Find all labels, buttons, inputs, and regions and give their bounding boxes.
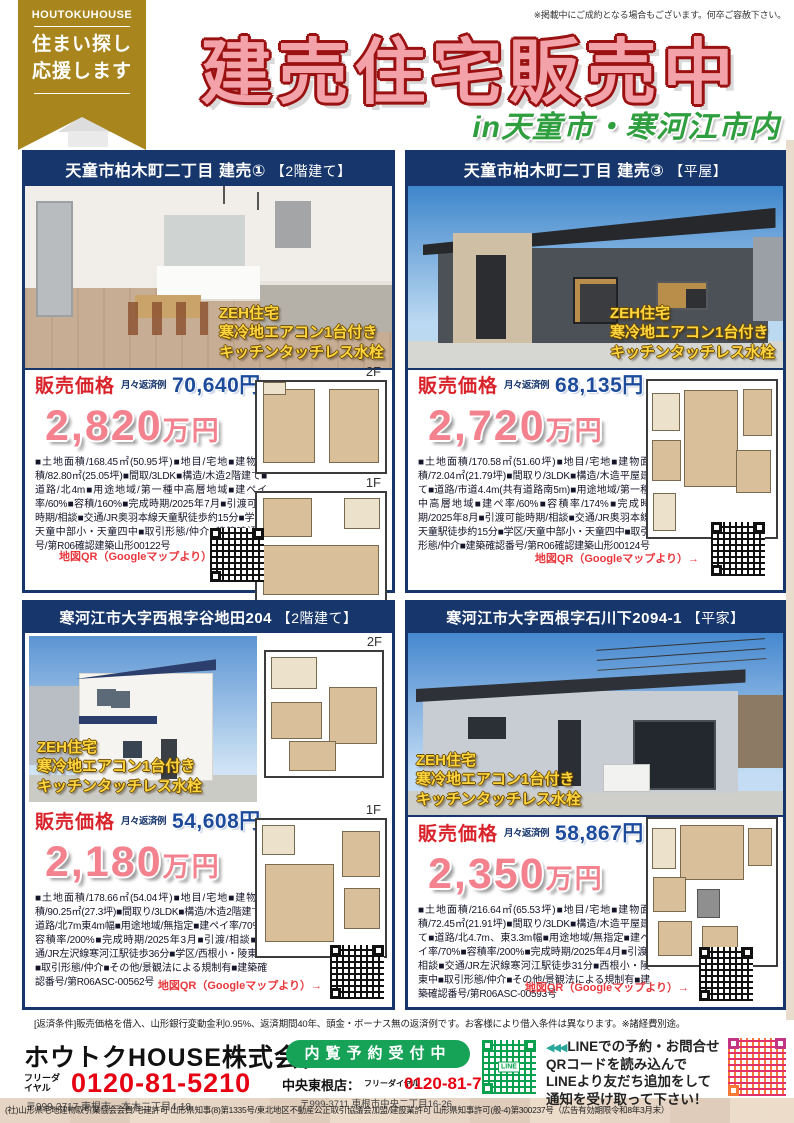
floor-label-2f: 2F [255,363,387,380]
zeh-line2: 寒冷地エアコン1台付き [610,323,775,343]
zeh-badge: ZEH住宅 寒冷地エアコン1台付き キッチンタッチレス水栓 [610,304,775,363]
price-unit: 万円 [163,416,221,446]
map-qr-label: 地図QR（Googleマップより）→ [59,548,223,564]
line-qr-label: LINE [498,1062,520,1073]
photo-neighbor-house [738,695,783,768]
brand-name: HOUTOKUHOUSE [18,9,146,21]
background-wood-edge [786,140,794,1020]
property-grid: 天童市柏木町二丁目 建売① 【2階建て】 ZEH住宅 寒冷地エアコン1台付き キ… [22,150,786,1012]
zeh-line3: キッチンタッチレス水栓 [416,790,581,810]
price-row: 販売価格 月々返済例 68,135円 [418,369,650,399]
ribbon-slogan-line2: 応援します [18,59,146,86]
photo-mid-roofline [79,716,157,724]
property-3-photo-row: ZEH住宅 寒冷地エアコン1台付き キッチンタッチレス水栓 2F [25,633,392,805]
photo-small-window [468,717,506,739]
ribbon-slogan: 住まい探し 応援します [18,32,146,85]
line-qr-code: LINE [482,1040,536,1094]
price-row: 販売価格 月々返済例 70,640円 [35,369,267,399]
zeh-line1: ZEH住宅 [37,738,202,758]
floorplan-2f [264,650,384,778]
ribbon-divider [34,26,130,27]
zeh-badge: ZEH住宅 寒冷地エアコン1台付き キッチンタッチレス水栓 [37,738,202,797]
property-3-details: ■土地面積/178.66㎡(54.04坪)■地目/宅地■建物面積/90.25㎡(… [35,892,267,990]
map-qr-code [699,947,753,1001]
floorplan-2f [255,380,387,474]
monthly-payment-value: 70,640円 [172,369,261,399]
property-2-title: 天童市柏木町二丁目 建売③ [464,163,665,180]
ribbon-slogan-line1: 住まい探し [18,32,146,59]
property-1-photo: ZEH住宅 寒冷地エアコン1台付き キッチンタッチレス水栓 [25,186,392,370]
zeh-line2: 寒冷地エアコン1台付き [416,770,581,790]
price-value: 2,350万円 [428,850,650,899]
map-qr-label: 地図QR（Googleマップより）→ [535,550,699,566]
monthly-payment-label: 月々返済例 [121,377,166,391]
price-number: 2,720 [428,402,546,450]
price-number: 2,180 [45,838,163,886]
price-label: 販売価格 [35,807,115,834]
main-phone-number: 0120-81-5210 [71,1068,251,1099]
zeh-line1: ZEH住宅 [610,304,775,324]
reservation-banner: 内覧予約受付中 [286,1040,470,1068]
photo-pendant-lights [223,186,225,204]
property-3-floorplan-2f-area: 2F [256,633,388,805]
price-value: 2,720万円 [428,402,650,451]
floorplan-1f [255,491,387,603]
property-card-1: 天童市柏木町二丁目 建売① 【2階建て】 ZEH住宅 寒冷地エアコン1台付き キ… [22,150,395,593]
photo-entry-door [476,255,506,339]
floor-label-2f: 2F [256,633,388,650]
zeh-line1: ZEH住宅 [219,304,384,324]
price-number: 2,820 [45,402,163,450]
photo-windows [97,689,115,706]
branch-store-label: 中央東根店： [282,1075,360,1094]
photo-power-lines [596,638,764,651]
photo-range-hood [275,201,312,248]
property-2-info: 販売価格 月々返済例 68,135円 2,720万円 ■土地面積/170.58㎡… [418,369,650,554]
property-card-2: 天童市柏木町二丁目 建売③ 【平屋】 ZEH住宅 寒冷地エアコン1台付き キッチ… [405,150,786,593]
zeh-line3: キッチンタッチレス水栓 [37,777,202,797]
map-qr-code [711,522,765,576]
property-4-floorplans [646,817,778,967]
price-label: 販売価格 [418,819,498,846]
map-qr-code [330,945,384,999]
zeh-line3: キッチンタッチレス水栓 [219,343,384,363]
property-3-photo: ZEH住宅 寒冷地エアコン1台付き キッチンタッチレス水栓 [29,636,257,802]
freedial-label: フリーダイヤル [24,1074,66,1094]
property-1-title: 天童市柏木町二丁目 建売① [65,163,266,180]
property-1-info: 販売価格 月々返済例 70,640円 2,820万円 ■土地面積/168.45㎡… [35,369,267,554]
property-2-details: ■土地面積/170.58㎡(51.60坪)■地目/宅地■建物面積/72.04㎡(… [418,456,650,554]
instagram-qr-code [728,1038,786,1096]
zeh-badge: ZEH住宅 寒冷地エアコン1台付き キッチンタッチレス水栓 [219,304,384,363]
line-instructions-line2: QRコードを読み込んで [546,1056,720,1074]
flyer-page: ※掲載中にご成約となる場合もございます。何卒ご容赦下さい。 HOUTOKUHOU… [0,0,794,1123]
photo-door [36,201,73,318]
zeh-badge: ZEH住宅 寒冷地エアコン1台付き キッチンタッチレス水栓 [416,751,581,810]
property-1-title-bar: 天童市柏木町二丁目 建売① 【2階建て】 [25,153,392,186]
floor-label-1f: 1F [255,474,387,491]
property-4-info: 販売価格 月々返済例 58,867円 2,350万円 ■土地面積/216.64㎡… [418,817,650,1002]
line-instructions: ◀◀◀LINEでの予約・お問合せ QRコードを読み込んで LINEより友だち追加… [546,1038,720,1108]
price-unit: 万円 [163,852,221,882]
price-label: 販売価格 [418,371,498,398]
property-4-type-tag: 【平家】 [687,610,745,626]
map-qr-code [210,528,264,582]
zeh-line3: キッチンタッチレス水栓 [610,343,775,363]
property-3-title-bar: 寒河江市大字西根字谷地田204 【2階建て】 [25,603,392,633]
floorplan-1f [255,818,387,958]
freedial-label: フリーダイヤル [364,1080,400,1089]
property-3-floorplan-1f-area: 1F [255,801,387,958]
floorplan-1f [646,817,778,967]
license-fine-print: (社)山形県宅地建物取引業協会会員/宅建許可 山形県知事(8)第1335号/東北… [5,1104,669,1116]
price-value: 2,180万円 [45,838,267,887]
main-phone-row: フリーダイヤル 0120-81-5210 [24,1068,251,1099]
monthly-payment-label: 月々返済例 [504,377,549,391]
monthly-payment-value: 68,135円 [555,369,644,399]
branch-phone-row: 中央東根店： フリーダイヤル 0120-81-7778 [282,1074,510,1094]
price-value: 2,820万円 [45,402,267,451]
map-qr-label: 地図QR（Googleマップより）→ [525,979,689,995]
property-card-4: 寒河江市大字西根字石川下2094-1 【平家】 ZEH住宅 寒冷地エアコン1台付… [405,600,786,1010]
property-2-type-tag: 【平屋】 [669,163,727,179]
property-card-3: 寒河江市大字西根字谷地田204 【2階建て】 ZEH住宅 寒冷地エアコン1台付き… [22,600,395,1010]
property-4-photo: ZEH住宅 寒冷地エアコン1台付き キッチンタッチレス水栓 [408,633,783,817]
left-arrows-icon: ◀◀◀ [546,1042,565,1054]
price-row: 販売価格 月々返済例 58,867円 [418,817,650,847]
monthly-payment-value: 58,867円 [555,817,644,847]
property-2-title-bar: 天童市柏木町二丁目 建売③ 【平屋】 [408,153,783,186]
map-qr-label: 地図QR（Googleマップより）→ [158,977,322,993]
monthly-payment-label: 月々返済例 [121,813,166,827]
property-4-title-bar: 寒河江市大字西根字石川下2094-1 【平家】 [408,603,783,633]
price-unit: 万円 [546,416,604,446]
property-1-floorplans: 2F 1F [255,363,387,603]
property-3-title: 寒河江市大字西根字谷地田204 [60,610,273,627]
property-1-type-tag: 【2階建て】 [271,163,352,179]
property-2-photo: ZEH住宅 寒冷地エアコン1台付き キッチンタッチレス水栓 [408,186,783,370]
line-instructions-line3: LINEより友だち追加をして [546,1073,720,1091]
page-subtitle: in天童市・寒河江市内 [472,102,780,146]
property-2-floorplans [646,379,778,539]
ribbon-divider [34,93,130,94]
zeh-line2: 寒冷地エアコン1台付き [37,757,202,777]
floorplan-1f [646,379,778,539]
photo-chairs [128,302,209,335]
monthly-payment-label: 月々返済例 [504,825,549,839]
property-3-info: 販売価格 月々返済例 54,608円 2,180万円 ■土地面積/178.66㎡… [35,805,267,990]
floor-label-1f: 1F [255,801,387,818]
price-unit: 万円 [546,864,604,894]
zeh-line1: ZEH住宅 [416,751,581,771]
line-instructions-line1: LINEでの予約・お問合せ [567,1039,719,1054]
property-4-title: 寒河江市大字西根字石川下2094-1 [446,610,682,627]
price-row: 販売価格 月々返済例 54,608円 [35,805,267,835]
photo-niche-wall [164,215,245,270]
repayment-conditions-note: [返済条件]販売価格を借入、山形銀行変動金利0.95%、返済期間40年、頭金・ボ… [34,1016,685,1030]
monthly-payment-value: 54,608円 [172,805,261,835]
property-3-type-tag: 【2階建て】 [277,610,358,626]
photo-ac-unit [603,764,650,791]
price-label: 販売価格 [35,371,115,398]
price-number: 2,350 [428,850,546,898]
zeh-line2: 寒冷地エアコン1台付き [219,323,384,343]
